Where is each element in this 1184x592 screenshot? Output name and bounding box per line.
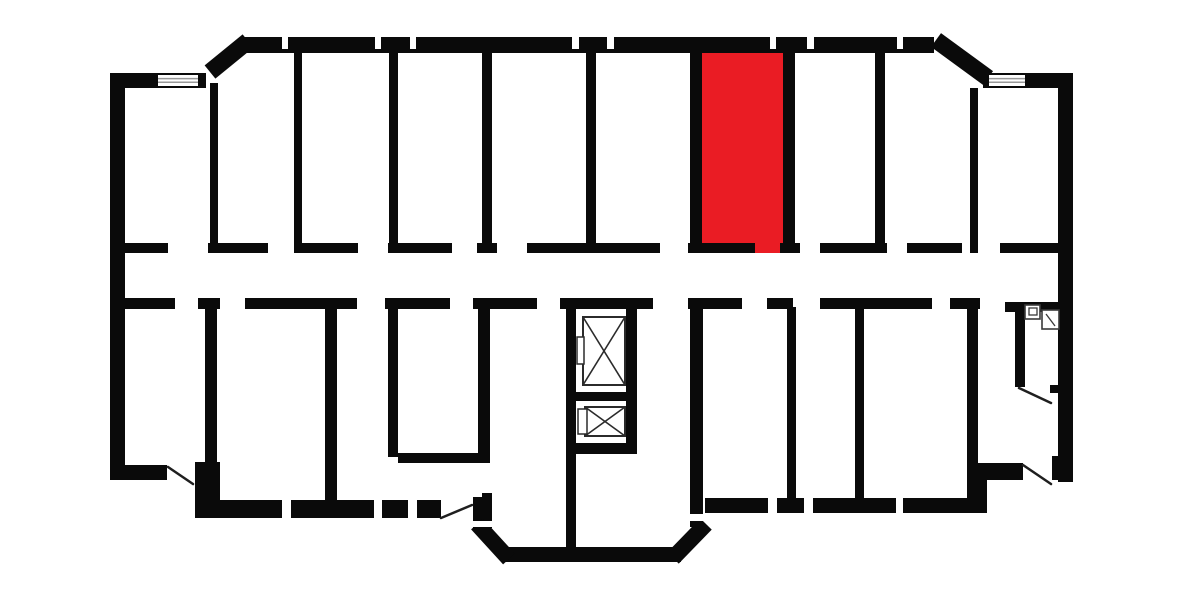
wall-segment	[566, 443, 637, 454]
wall-segment	[705, 498, 768, 513]
wall-segment	[813, 498, 896, 513]
wall-opening-slit	[375, 37, 381, 49]
wall-segment	[398, 453, 490, 463]
wall-segment	[110, 73, 125, 480]
wall-segment	[294, 53, 302, 253]
toilet-tank-icon	[1029, 308, 1037, 315]
wall-segment	[787, 307, 796, 503]
wall-segment	[875, 53, 885, 253]
wall-segment	[855, 307, 864, 503]
wall-segment	[325, 307, 337, 503]
wall-segment	[417, 500, 441, 518]
wall-segment	[388, 307, 398, 457]
wall-segment	[205, 307, 217, 462]
floor-plan-canvas	[0, 0, 1184, 592]
wall-segment	[783, 52, 795, 253]
wall-segment	[1015, 310, 1025, 387]
window	[989, 75, 1025, 86]
wall-segment	[388, 243, 452, 253]
wall-opening-slit	[770, 37, 776, 49]
wall-segment	[688, 243, 755, 253]
wall-segment	[626, 302, 637, 452]
wall-segment	[527, 243, 660, 253]
wall-segment	[482, 493, 492, 499]
wall-segment	[482, 53, 492, 253]
window	[158, 75, 198, 86]
wall-segment	[820, 243, 887, 253]
wall-segment	[125, 298, 175, 309]
floor-plan	[0, 0, 1184, 592]
highlighted-room[interactable]	[702, 53, 783, 244]
wall-segment	[240, 37, 934, 53]
wall-opening-slit	[282, 37, 288, 49]
wall-segment	[382, 500, 408, 518]
wall-segment	[200, 500, 282, 518]
elevator-door-icon	[577, 337, 584, 364]
wall-segment	[903, 498, 967, 513]
wall-segment	[780, 243, 800, 253]
wall-segment	[298, 243, 358, 253]
wall-segment	[586, 53, 596, 253]
wall-opening-slit	[471, 521, 494, 527]
wall-segment	[576, 392, 626, 401]
wall-segment	[978, 463, 1023, 480]
wall-segment	[245, 298, 357, 309]
wall-segment	[110, 465, 167, 480]
wall-segment	[820, 298, 932, 309]
wall-segment	[478, 307, 490, 463]
wall-segment	[210, 83, 218, 253]
wall-opening-slit	[410, 37, 416, 49]
wall-opening-slit	[807, 37, 814, 49]
highlighted-room-door-tab	[755, 243, 780, 253]
wall-opening-slit	[897, 37, 903, 49]
wall-opening-slit	[572, 37, 579, 49]
elevator-door-icon	[578, 409, 587, 434]
wall-segment	[1050, 385, 1063, 393]
wall-segment	[110, 243, 168, 253]
wall-opening-slit	[688, 514, 705, 521]
wall-segment	[566, 302, 576, 555]
wall-segment	[1058, 73, 1073, 482]
wall-opening-slit	[607, 37, 614, 49]
wall-segment	[389, 53, 398, 253]
wall-segment	[970, 88, 978, 253]
wall-segment	[967, 307, 978, 463]
wall-segment	[503, 547, 681, 562]
wall-segment	[690, 50, 702, 253]
wall-segment	[477, 243, 497, 253]
wall-segment	[1000, 243, 1058, 253]
wall-segment	[208, 243, 268, 253]
wall-segment	[907, 243, 962, 253]
wall-segment	[690, 307, 703, 527]
wall-segment	[688, 298, 742, 309]
